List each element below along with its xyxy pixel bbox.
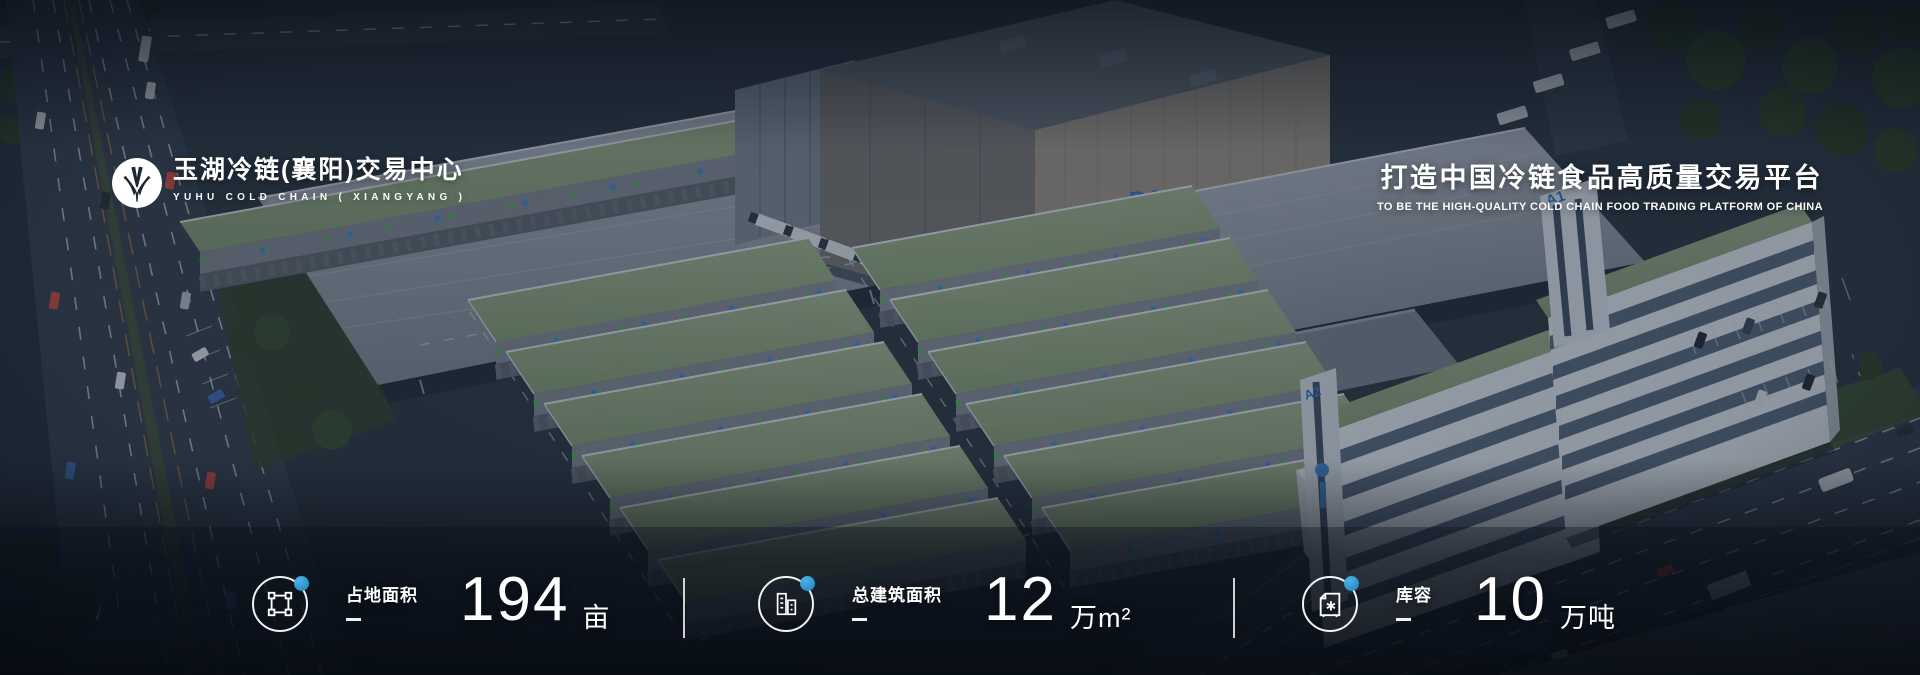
stat-storage-capacity: 库容 10 万吨 [1302,576,1616,638]
hero-banner: C2 [0,0,1920,675]
brand-lockup[interactable]: 玉湖冷链(襄阳)交易中心 YUHU COLD CHAIN ( XIANGYANG… [111,157,466,209]
stat-unit: 亩 [582,596,610,638]
brand-text: 玉湖冷链(襄阳)交易中心 YUHU COLD CHAIN ( XIANGYANG… [173,157,466,203]
buildings-icon [758,576,814,632]
slogan-zh: 打造中国冷链食品高质量交易平台 [1377,156,1823,195]
stat-unit: 万m² [1070,596,1131,638]
stat-label: 库容 [1396,581,1432,606]
accent-dot [800,576,815,591]
stat-dash [346,618,361,621]
accent-dot [1344,576,1359,591]
stat-dash [852,618,867,621]
stat-value: 194 [460,569,569,631]
stat-value: 12 [984,569,1057,631]
stat-building-area: 总建筑面积 12 万m² [758,576,1131,638]
land-plot-icon [252,576,308,632]
stats-divider [1233,578,1235,638]
aerial-site-rendering: C2 [0,0,1920,675]
stat-meta: 库容 [1396,581,1432,621]
stats-divider [683,578,685,638]
stat-label: 总建筑面积 [852,581,942,606]
stat-meta: 占地面积 [346,581,418,621]
stat-land-area: 占地面积 194 亩 [252,576,610,638]
slogan-block: 打造中国冷链食品高质量交易平台 TO BE THE HIGH-QUALITY C… [1377,156,1823,213]
stat-label: 占地面积 [346,581,418,606]
stat-dash [1396,618,1411,621]
stat-value: 10 [1474,569,1547,631]
slogan-en: TO BE THE HIGH-QUALITY COLD CHAIN FOOD T… [1377,201,1823,213]
brand-title-zh: 玉湖冷链(襄阳)交易中心 [173,157,466,185]
stat-meta: 总建筑面积 [852,581,942,621]
cold-storage-icon [1302,576,1358,632]
yuhu-logo-icon [111,157,163,209]
brand-title-en: YUHU COLD CHAIN ( XIANGYANG ) [173,192,466,203]
accent-dot [294,576,309,591]
stat-unit: 万吨 [1560,596,1616,638]
